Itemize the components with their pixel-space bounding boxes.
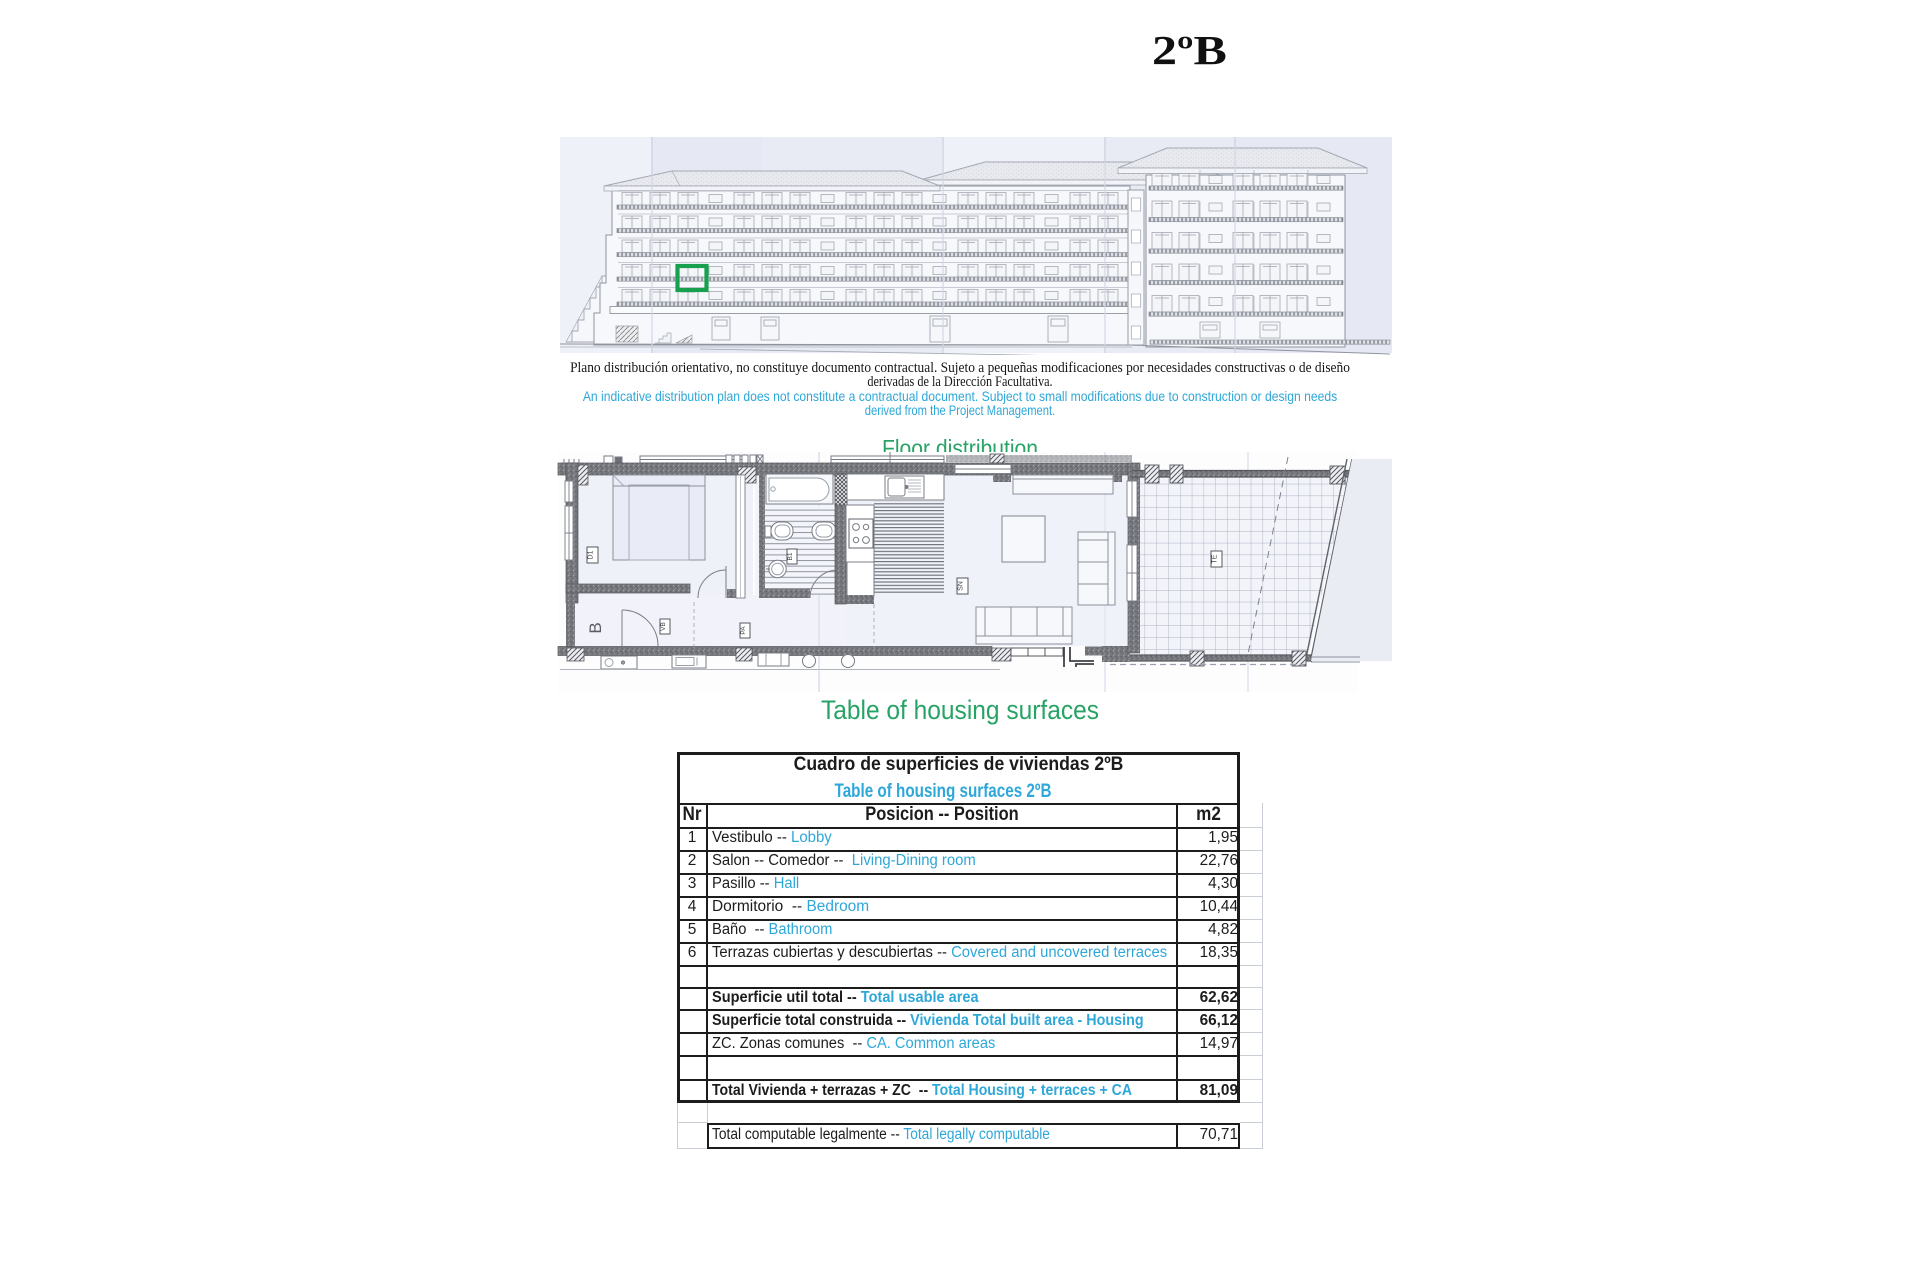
svg-text:SN: SN [958,581,965,591]
svg-text:B1: B1 [787,552,794,560]
svg-text:VB: VB [660,622,667,631]
svg-text:B: B [586,622,605,633]
svg-text:PA: PA [740,626,747,635]
svg-text:D1: D1 [588,550,595,559]
svg-text:TE: TE [1212,554,1219,563]
